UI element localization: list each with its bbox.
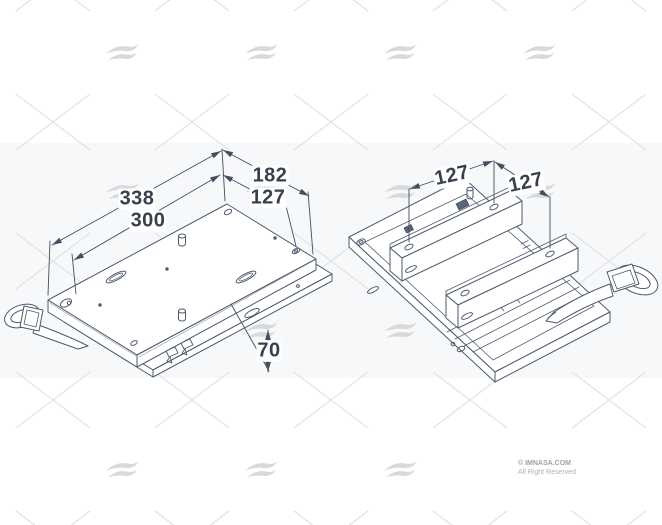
dim-label-70: 70 bbox=[256, 341, 281, 362]
dim-label-127-left: 127 bbox=[250, 188, 287, 209]
rights-text: All Right Reserved bbox=[518, 469, 576, 478]
dim-label-300: 300 bbox=[130, 211, 167, 232]
copyright-block: © IMNASA.COM All Right Reserved bbox=[516, 458, 586, 481]
dim-label-338: 338 bbox=[119, 189, 156, 210]
technical-drawing bbox=[0, 0, 662, 525]
diagram-canvas: 338 300 182 127 70 127 127 © IMNASA.COM … bbox=[0, 0, 662, 525]
copyright-text: © IMNASA.COM bbox=[518, 460, 576, 469]
dim-label-182: 182 bbox=[252, 166, 289, 187]
